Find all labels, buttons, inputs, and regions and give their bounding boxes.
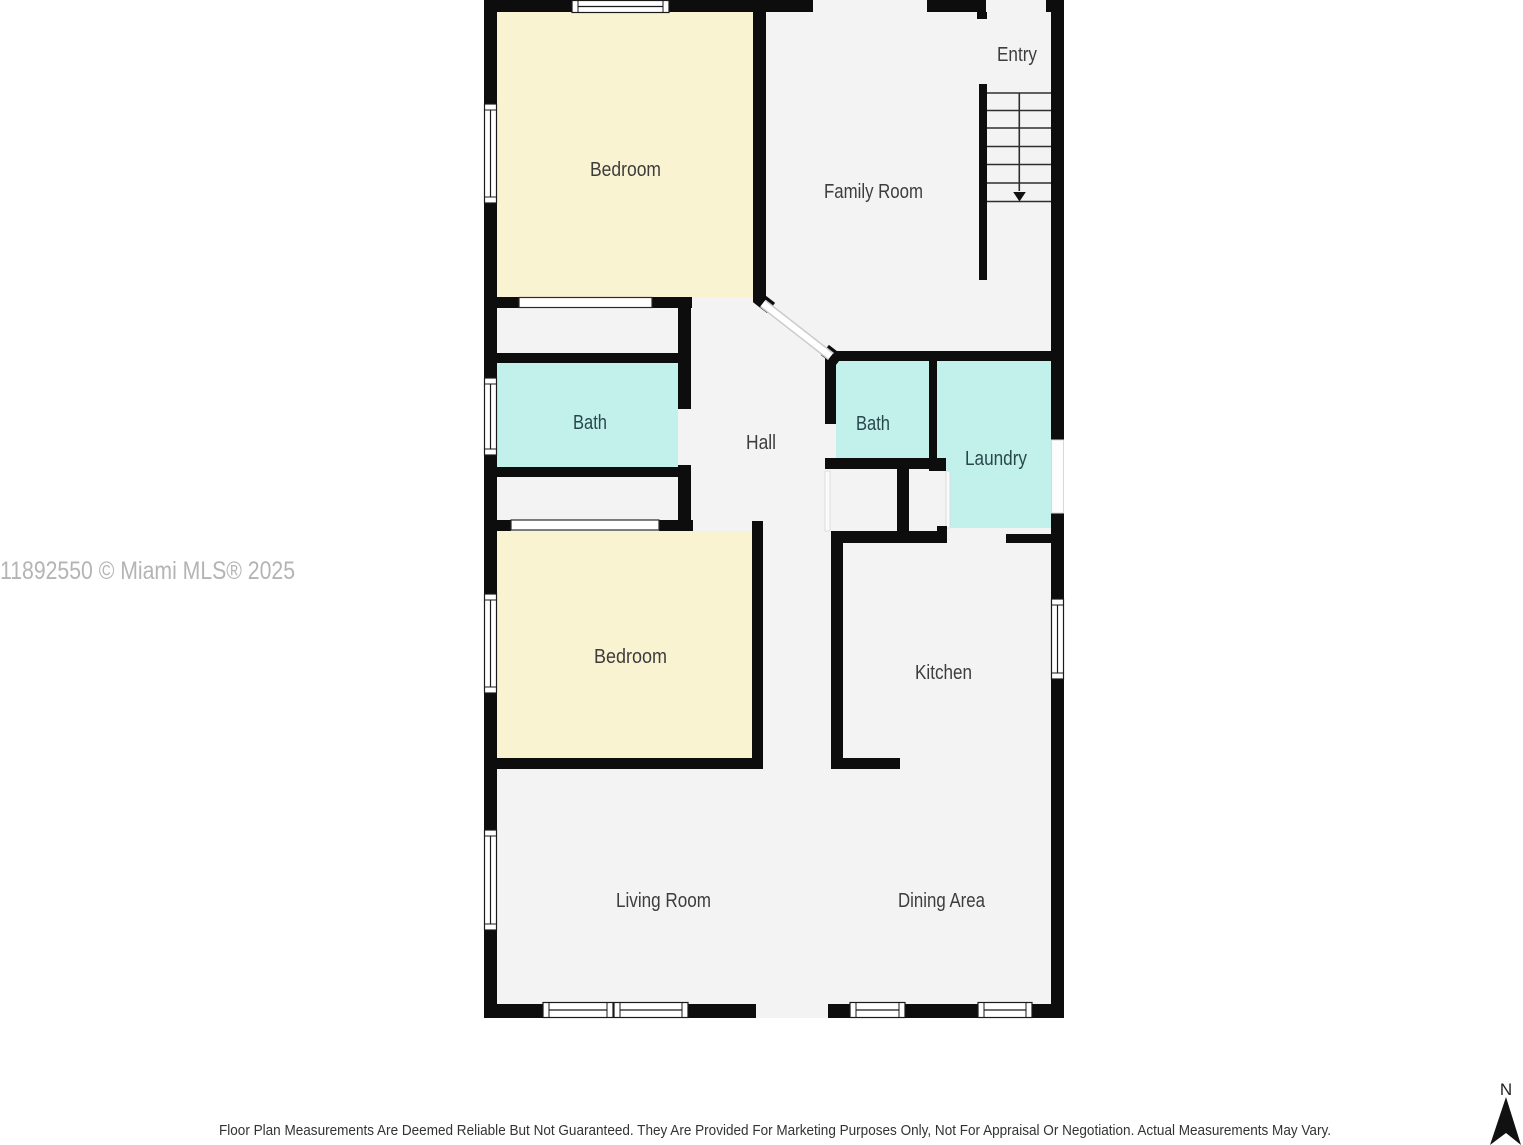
svg-text:Laundry: Laundry: [965, 448, 1027, 470]
svg-text:Floor Plan Measurements Are De: Floor Plan Measurements Are Deemed Relia…: [219, 1123, 1331, 1139]
svg-text:Bath: Bath: [856, 413, 890, 435]
svg-text:Hall: Hall: [746, 432, 776, 454]
svg-text:Entry: Entry: [997, 44, 1037, 66]
svg-text:Bedroom: Bedroom: [594, 646, 667, 668]
svg-text:Dining Area: Dining Area: [898, 890, 986, 912]
svg-text:Kitchen: Kitchen: [915, 662, 972, 684]
svg-text:Living Room: Living Room: [616, 890, 711, 912]
svg-text:N: N: [1500, 1080, 1512, 1099]
svg-text:Family Room: Family Room: [824, 181, 923, 203]
svg-text:11892550 © Miami MLS® 2025: 11892550 © Miami MLS® 2025: [0, 557, 295, 585]
svg-text:Bath: Bath: [573, 412, 607, 434]
svg-text:Bedroom: Bedroom: [590, 159, 661, 181]
